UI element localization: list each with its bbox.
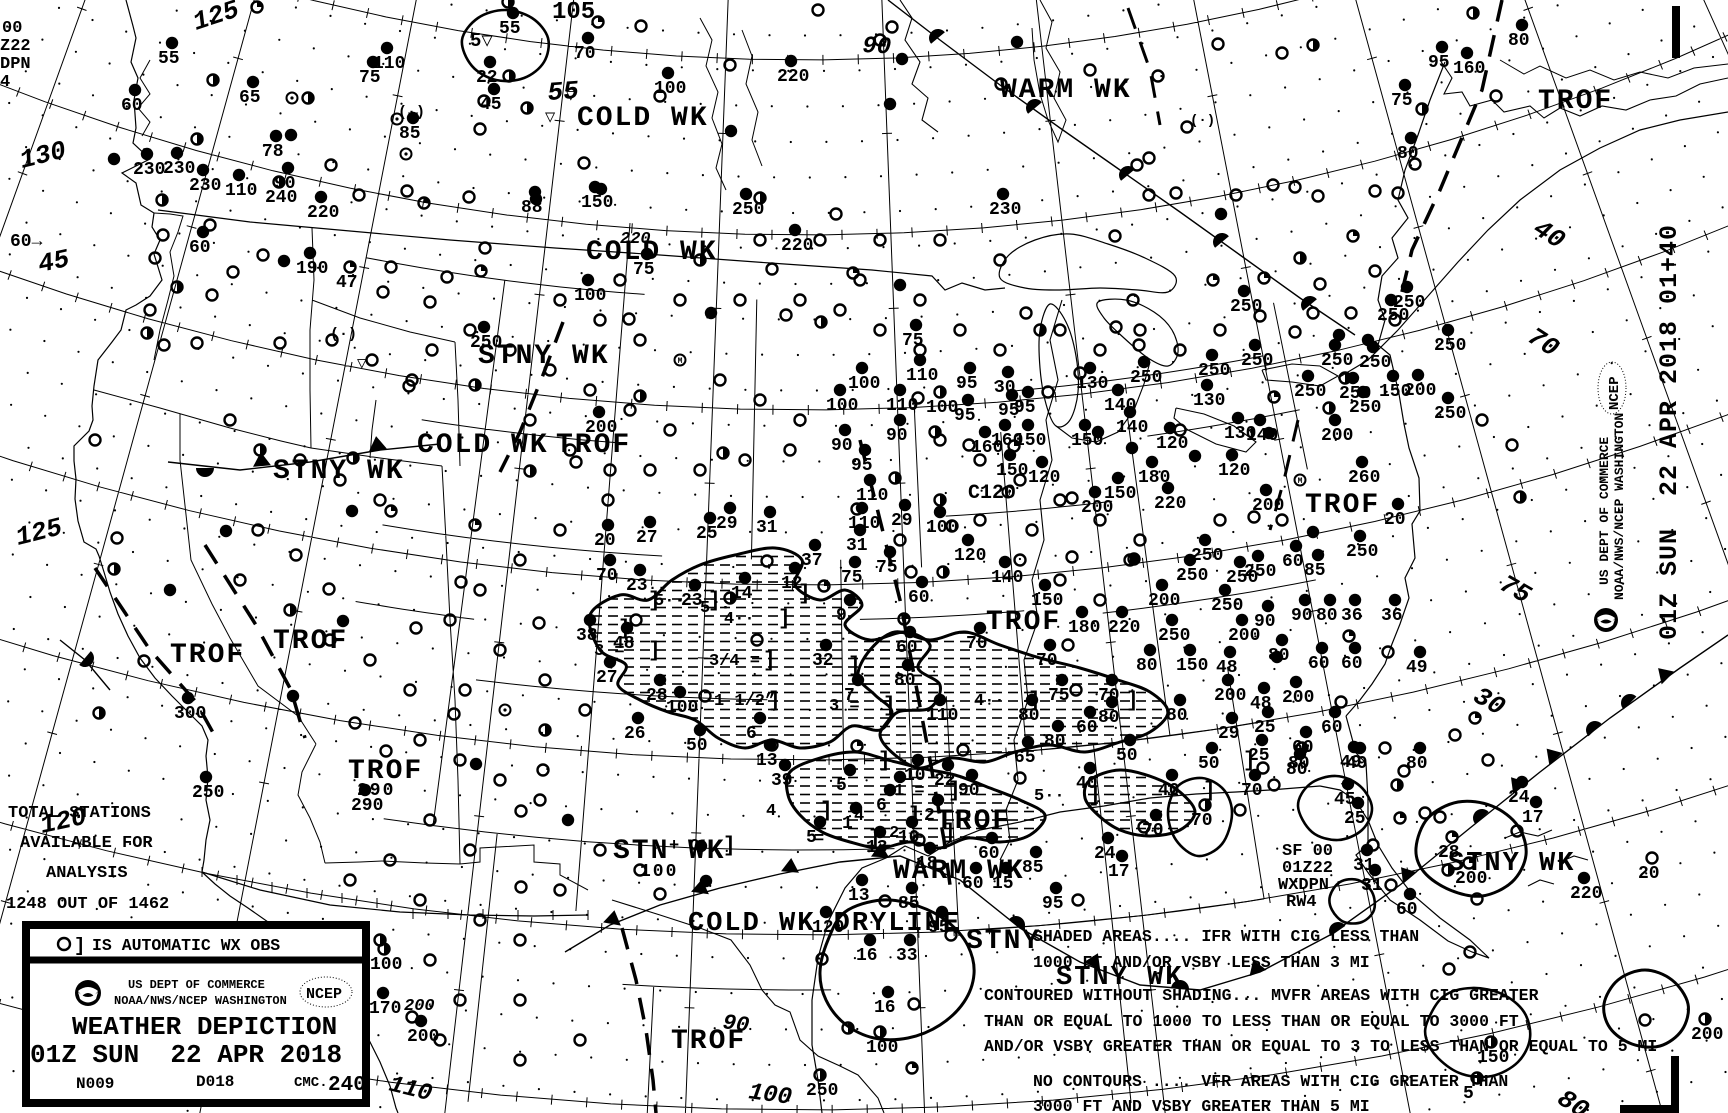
svg-text:120: 120 xyxy=(954,546,986,566)
svg-text:COLD WK: COLD WK xyxy=(417,430,549,461)
svg-text:250: 250 xyxy=(1211,596,1243,616)
svg-text:TROF: TROF xyxy=(936,806,1011,837)
svg-text:M: M xyxy=(678,357,683,366)
svg-text:80: 80 xyxy=(1098,708,1120,728)
svg-text:36: 36 xyxy=(1381,606,1403,626)
svg-text:]: ] xyxy=(618,618,631,641)
svg-text:49: 49 xyxy=(1406,658,1428,678)
svg-text:70: 70 xyxy=(574,44,596,64)
svg-text:120: 120 xyxy=(1156,434,1188,454)
svg-text:WEATHER DEPICTION: WEATHER DEPICTION xyxy=(72,1012,337,1042)
svg-text:]: ] xyxy=(1203,780,1216,803)
svg-text:01Z SUN 22 APR 2018 01+40: 01Z SUN 22 APR 2018 01+40 xyxy=(1655,224,1684,640)
svg-text:30: 30 xyxy=(994,378,1016,398)
svg-text:60: 60 xyxy=(1076,718,1098,738)
svg-text:01Z SUN 22 APR 2018: 01Z SUN 22 APR 2018 xyxy=(30,1040,342,1070)
svg-text:4··: 4·· xyxy=(974,692,1005,711)
svg-text:150: 150 xyxy=(1176,656,1208,676)
svg-text:60: 60 xyxy=(1396,900,1418,920)
svg-text:STNY WK: STNY WK xyxy=(273,456,405,487)
svg-text:NO CONTOURS .... VFR AREAS WIT: NO CONTOURS .... VFR AREAS WITH CIG GREA… xyxy=(1033,1072,1508,1091)
svg-text:24: 24 xyxy=(1508,788,1530,808)
svg-text:16: 16 xyxy=(874,998,896,1018)
svg-text:100: 100 xyxy=(866,1038,898,1058)
svg-text:250: 250 xyxy=(1198,361,1230,381)
svg-text:IS AUTOMATIC WX OBS: IS AUTOMATIC WX OBS xyxy=(92,936,280,955)
svg-text:60: 60 xyxy=(121,96,143,116)
svg-text:70: 70 xyxy=(1241,781,1263,801)
svg-text:27: 27 xyxy=(596,668,618,688)
svg-text:1000 FT AND/OR VSBY LESS THAN: 1000 FT AND/OR VSBY LESS THAN 3 MI xyxy=(1033,953,1370,972)
svg-text:NCEP: NCEP xyxy=(1607,376,1623,410)
svg-text:20: 20 xyxy=(1384,510,1406,530)
svg-text:26: 26 xyxy=(624,724,646,744)
svg-text:230: 230 xyxy=(189,176,221,196)
svg-text:60: 60 xyxy=(896,638,918,658)
svg-text:110: 110 xyxy=(926,706,958,726)
svg-text:27: 27 xyxy=(636,528,658,548)
svg-text:5··: 5·· xyxy=(700,599,731,618)
svg-text:▽: ▽ xyxy=(545,109,556,128)
svg-text:200: 200 xyxy=(1081,498,1113,518)
svg-text:TROF: TROF xyxy=(273,626,348,657)
svg-text:80: 80 xyxy=(1288,754,1310,774)
svg-text:3 =: 3 = xyxy=(829,697,860,716)
svg-text:140: 140 xyxy=(991,568,1023,588)
svg-text:47: 47 xyxy=(336,273,358,293)
svg-text:3000 FT AND VSBY GREATER THAN: 3000 FT AND VSBY GREATER THAN 5 MI xyxy=(1033,1097,1370,1113)
svg-text:SHADED AREAS.... IFR WITH CIG: SHADED AREAS.... IFR WITH CIG LESS THAN xyxy=(1033,927,1419,946)
svg-text:45: 45 xyxy=(1334,790,1356,810)
svg-text:TROF: TROF xyxy=(986,607,1061,638)
svg-text:100: 100 xyxy=(666,698,698,718)
svg-text:60: 60 xyxy=(908,588,930,608)
svg-text:40: 40 xyxy=(1158,781,1180,801)
svg-text:1: 1 xyxy=(842,814,853,834)
svg-text:STNY WK: STNY WK xyxy=(1448,849,1575,879)
svg-text:95: 95 xyxy=(851,456,873,476)
svg-text:C120: C120 xyxy=(968,482,1016,505)
svg-text:90: 90 xyxy=(1254,612,1276,632)
svg-text:160: 160 xyxy=(1453,59,1485,79)
svg-text:9: 9 xyxy=(836,606,847,626)
svg-text:WARM WK: WARM WK xyxy=(893,856,1025,887)
svg-text:100: 100 xyxy=(574,286,606,306)
svg-text:70: 70 xyxy=(1191,811,1213,831)
svg-text:ANALYSIS: ANALYSIS xyxy=(46,864,128,883)
svg-text:70: 70 xyxy=(1036,651,1058,671)
svg-text:65: 65 xyxy=(239,88,261,108)
svg-text:5▽: 5▽ xyxy=(470,30,493,52)
svg-text:60: 60 xyxy=(1321,718,1343,738)
svg-text:80: 80 xyxy=(1044,732,1066,752)
svg-text:50: 50 xyxy=(686,736,708,756)
svg-text:90: 90 xyxy=(958,781,980,801)
svg-text:250: 250 xyxy=(1294,382,1326,402)
svg-text:2: 2 xyxy=(889,824,899,843)
svg-text:(·): (·) xyxy=(1190,113,1215,129)
svg-text:100: 100 xyxy=(848,374,880,394)
svg-text:29: 29 xyxy=(891,511,913,531)
svg-text:80: 80 xyxy=(894,671,916,691)
svg-text:110: 110 xyxy=(225,181,257,201)
svg-text:250: 250 xyxy=(1241,351,1273,371)
svg-text:]: ] xyxy=(74,935,85,957)
svg-text:105: 105 xyxy=(552,0,595,26)
svg-text:70: 70 xyxy=(596,566,618,586)
svg-text:STNY: STNY xyxy=(966,926,1041,957)
svg-text:200: 200 xyxy=(1404,381,1436,401)
svg-text:NOAA/NWS/NCEP WASHINGTON: NOAA/NWS/NCEP WASHINGTON xyxy=(114,994,287,1008)
svg-text:90: 90 xyxy=(886,426,908,446)
svg-text:80: 80 xyxy=(1397,144,1419,164)
svg-text:80: 80 xyxy=(1136,656,1158,676)
svg-text:130: 130 xyxy=(1193,391,1225,411)
svg-text:75: 75 xyxy=(1048,686,1070,706)
svg-text:190: 190 xyxy=(296,259,328,279)
svg-text:39: 39 xyxy=(771,771,793,791)
svg-text:STNY WK: STNY WK xyxy=(478,341,610,372)
svg-text:17: 17 xyxy=(1108,862,1130,882)
svg-text:23: 23 xyxy=(626,576,648,596)
svg-text:100: 100 xyxy=(370,955,402,975)
svg-text:CMC.: CMC. xyxy=(294,1075,328,1091)
svg-text:100: 100 xyxy=(640,862,678,882)
svg-text:DPN: DPN xyxy=(0,55,31,74)
svg-text:250: 250 xyxy=(1349,398,1381,418)
svg-text:TROF: TROF xyxy=(556,430,631,461)
svg-text:WK: WK xyxy=(688,836,726,867)
svg-text:]: ] xyxy=(1243,750,1256,773)
svg-text:]: ] xyxy=(878,750,891,773)
svg-text:160: 160 xyxy=(971,438,1003,458)
svg-text:4: 4 xyxy=(0,73,10,92)
svg-text:260: 260 xyxy=(1348,468,1380,488)
svg-text:]: ] xyxy=(648,640,661,663)
svg-text:]: ] xyxy=(1126,690,1139,713)
svg-text:33: 33 xyxy=(896,946,918,966)
svg-text:85: 85 xyxy=(1304,561,1326,581)
svg-text:200: 200 xyxy=(1148,591,1180,611)
svg-text:]: ] xyxy=(948,780,961,803)
svg-text:70: 70 xyxy=(1142,821,1164,841)
svg-text:]: ] xyxy=(848,655,861,678)
svg-text:29: 29 xyxy=(716,514,738,534)
svg-text:250: 250 xyxy=(1176,566,1208,586)
svg-text:13: 13 xyxy=(756,751,778,771)
svg-text:120: 120 xyxy=(1218,461,1250,481)
svg-text:150: 150 xyxy=(996,461,1028,481)
svg-text:170: 170 xyxy=(369,999,401,1019)
svg-text:95: 95 xyxy=(956,374,978,394)
svg-text:28: 28 xyxy=(646,686,668,706)
svg-text:NCEP: NCEP xyxy=(306,986,342,1003)
svg-text:US DEPT OF COMMERCE: US DEPT OF COMMERCE xyxy=(1597,437,1612,585)
svg-text:]: ] xyxy=(883,695,896,718)
svg-text:N009: N009 xyxy=(76,1075,114,1093)
svg-text:TROF: TROF xyxy=(671,1026,746,1057)
svg-text:75: 75 xyxy=(902,331,924,351)
svg-text:]: ] xyxy=(798,583,811,606)
svg-text:RW4: RW4 xyxy=(1286,893,1317,912)
svg-text:]: ] xyxy=(868,828,881,851)
svg-text:20: 20 xyxy=(594,531,616,551)
svg-text:45: 45 xyxy=(480,95,502,115)
svg-text:250: 250 xyxy=(1158,626,1190,646)
svg-text:95: 95 xyxy=(954,406,976,426)
svg-text:65: 65 xyxy=(1014,748,1036,768)
svg-text:80: 80 xyxy=(1316,606,1338,626)
svg-text:=: = xyxy=(814,830,824,849)
svg-text:2: 2 xyxy=(924,806,935,826)
svg-text:13: 13 xyxy=(848,886,870,906)
svg-text:US DEPT OF COMMERCE: US DEPT OF COMMERCE xyxy=(128,978,265,992)
svg-text:6: 6 xyxy=(876,796,887,816)
svg-text:80: 80 xyxy=(1508,31,1530,51)
svg-text:TROF: TROF xyxy=(1305,490,1380,521)
svg-text:220: 220 xyxy=(1154,494,1186,514)
svg-text:250: 250 xyxy=(1321,351,1353,371)
svg-text:55: 55 xyxy=(158,49,180,69)
svg-text:100: 100 xyxy=(826,396,858,416)
svg-text:31: 31 xyxy=(846,536,868,556)
svg-text:60→: 60→ xyxy=(10,232,43,252)
svg-text:75: 75 xyxy=(876,558,898,578)
svg-text:1248 OUT OF 1462: 1248 OUT OF 1462 xyxy=(6,895,169,914)
svg-text:3 =: 3 = xyxy=(594,642,625,661)
svg-text:24: 24 xyxy=(1094,844,1116,864)
svg-text:▽: ▽ xyxy=(357,355,367,373)
svg-text:200: 200 xyxy=(1282,688,1314,708)
svg-text:240: 240 xyxy=(328,1074,366,1097)
svg-text:75: 75 xyxy=(1391,91,1413,111)
svg-text:TROF: TROF xyxy=(1538,86,1613,117)
svg-text:4: 4 xyxy=(766,802,776,821)
svg-text:220: 220 xyxy=(307,203,339,223)
svg-text:250: 250 xyxy=(806,1081,838,1101)
svg-text:25: 25 xyxy=(1344,809,1366,829)
svg-text:90: 90 xyxy=(274,174,296,194)
svg-text:250: 250 xyxy=(192,783,224,803)
svg-text:48: 48 xyxy=(1216,658,1238,678)
svg-text:250: 250 xyxy=(1346,542,1378,562)
svg-text:WARM WK: WARM WK xyxy=(1000,75,1132,106)
svg-text:]: ] xyxy=(763,650,776,673)
svg-text:THAN OR EQUAL TO 1000 TO LESS: THAN OR EQUAL TO 1000 TO LESS THAN OR EQ… xyxy=(984,1012,1519,1031)
svg-text:90: 90 xyxy=(831,436,853,456)
svg-text:29: 29 xyxy=(1218,724,1240,744)
svg-text:95: 95 xyxy=(1014,398,1036,418)
svg-text:55: 55 xyxy=(499,19,521,39)
svg-text:36: 36 xyxy=(1341,606,1363,626)
svg-text:3/4 =: 3/4 = xyxy=(709,652,760,671)
svg-text:16: 16 xyxy=(856,946,878,966)
svg-text:]: ] xyxy=(1088,785,1101,808)
svg-text:]: ] xyxy=(1028,690,1041,713)
svg-text:250: 250 xyxy=(1230,297,1262,317)
svg-text:250: 250 xyxy=(1359,353,1391,373)
svg-text:120: 120 xyxy=(1028,468,1060,488)
svg-text:1 1/2”: 1 1/2” xyxy=(714,692,775,711)
svg-text:50: 50 xyxy=(1198,754,1220,774)
svg-text:5: 5 xyxy=(836,776,847,796)
svg-text:(·): (·) xyxy=(330,326,357,343)
svg-text:95: 95 xyxy=(1428,53,1450,73)
svg-text:60: 60 xyxy=(189,238,211,258)
svg-text:75: 75 xyxy=(359,68,381,88)
svg-text:]: ] xyxy=(820,800,833,823)
svg-text:200: 200 xyxy=(1691,1025,1723,1045)
svg-text:100: 100 xyxy=(654,79,686,99)
svg-text:]: ] xyxy=(768,690,781,713)
svg-text:31: 31 xyxy=(1361,876,1383,896)
svg-text:5··: 5·· xyxy=(1034,787,1065,806)
svg-text:31: 31 xyxy=(756,518,778,538)
svg-text:]: ] xyxy=(908,805,921,828)
svg-text:▽: ▽ xyxy=(566,87,576,105)
svg-text:50: 50 xyxy=(1116,746,1138,766)
svg-text:32: 32 xyxy=(812,651,834,671)
svg-text:250: 250 xyxy=(1434,336,1466,356)
svg-text:130: 130 xyxy=(1076,374,1108,394)
svg-text:290: 290 xyxy=(357,781,395,801)
svg-text:25: 25 xyxy=(1254,718,1276,738)
svg-text:220: 220 xyxy=(781,236,813,256)
svg-text:250: 250 xyxy=(1434,404,1466,424)
svg-text:Z22: Z22 xyxy=(0,37,31,56)
svg-text:D018: D018 xyxy=(196,1073,234,1091)
svg-text:]: ] xyxy=(778,608,791,631)
svg-text:20: 20 xyxy=(1638,864,1660,884)
svg-text:37: 37 xyxy=(801,551,823,571)
svg-text:230: 230 xyxy=(133,160,165,180)
svg-text:17: 17 xyxy=(1522,808,1544,828)
svg-text:(·): (·) xyxy=(398,104,425,121)
svg-text:25: 25 xyxy=(696,524,718,544)
svg-text:140: 140 xyxy=(1116,418,1148,438)
svg-text:COLD WK: COLD WK xyxy=(586,237,718,268)
svg-text:220: 220 xyxy=(1108,618,1140,638)
svg-text:90: 90 xyxy=(1291,606,1313,626)
svg-text:250: 250 xyxy=(1130,368,1162,388)
svg-text:60: 60 xyxy=(1308,654,1330,674)
svg-text:75: 75 xyxy=(841,568,863,588)
svg-text:230: 230 xyxy=(989,200,1021,220)
svg-text:NOAA/NWS/NCEP WASHINGTON: NOAA/NWS/NCEP WASHINGTON xyxy=(1612,413,1627,600)
svg-text:70: 70 xyxy=(966,634,988,654)
svg-text:180: 180 xyxy=(1068,618,1100,638)
svg-text:TOTAL STATIONS: TOTAL STATIONS xyxy=(8,804,151,823)
svg-text:TROF: TROF xyxy=(170,640,245,671)
svg-text:AVAILABLE FOR: AVAILABLE FOR xyxy=(20,834,153,853)
svg-text:80: 80 xyxy=(1166,706,1188,726)
svg-text:110: 110 xyxy=(906,366,938,386)
svg-text:200: 200 xyxy=(1321,426,1353,446)
svg-text:95: 95 xyxy=(1042,894,1064,914)
svg-text:90: 90 xyxy=(862,33,892,61)
svg-text:COLD WK DRYLINE: COLD WK DRYLINE xyxy=(688,909,961,939)
svg-text:200: 200 xyxy=(1214,686,1246,706)
svg-text:250: 250 xyxy=(1244,562,1276,582)
svg-text:60: 60 xyxy=(1282,552,1304,572)
svg-text:CONTOURED WITHOUT SHADING... M: CONTOURED WITHOUT SHADING... MVFR AREAS … xyxy=(984,986,1539,1005)
svg-text:220: 220 xyxy=(1570,884,1602,904)
svg-text:150: 150 xyxy=(581,193,613,213)
svg-text:AND/OR VSBY GREATER THAN OR EQ: AND/OR VSBY GREATER THAN OR EQUAL TO 3 T… xyxy=(984,1037,1657,1056)
svg-text:00: 00 xyxy=(2,19,22,38)
svg-text:M: M xyxy=(1298,477,1303,486)
svg-text:220: 220 xyxy=(777,67,809,87)
svg-text:250: 250 xyxy=(1191,546,1223,566)
svg-text:··: ·· xyxy=(648,580,666,597)
svg-text:1 =: 1 = xyxy=(894,782,925,801)
svg-text:49: 49 xyxy=(1340,753,1362,773)
svg-text:22: 22 xyxy=(476,68,498,88)
svg-text:78: 78 xyxy=(262,142,284,162)
svg-text:85: 85 xyxy=(1022,858,1044,878)
svg-text:60: 60 xyxy=(1341,654,1363,674)
svg-text:4: 4 xyxy=(854,807,864,826)
svg-text:6: 6 xyxy=(746,724,757,744)
svg-text:COLD WK: COLD WK xyxy=(577,103,709,134)
svg-text:300: 300 xyxy=(174,704,206,724)
